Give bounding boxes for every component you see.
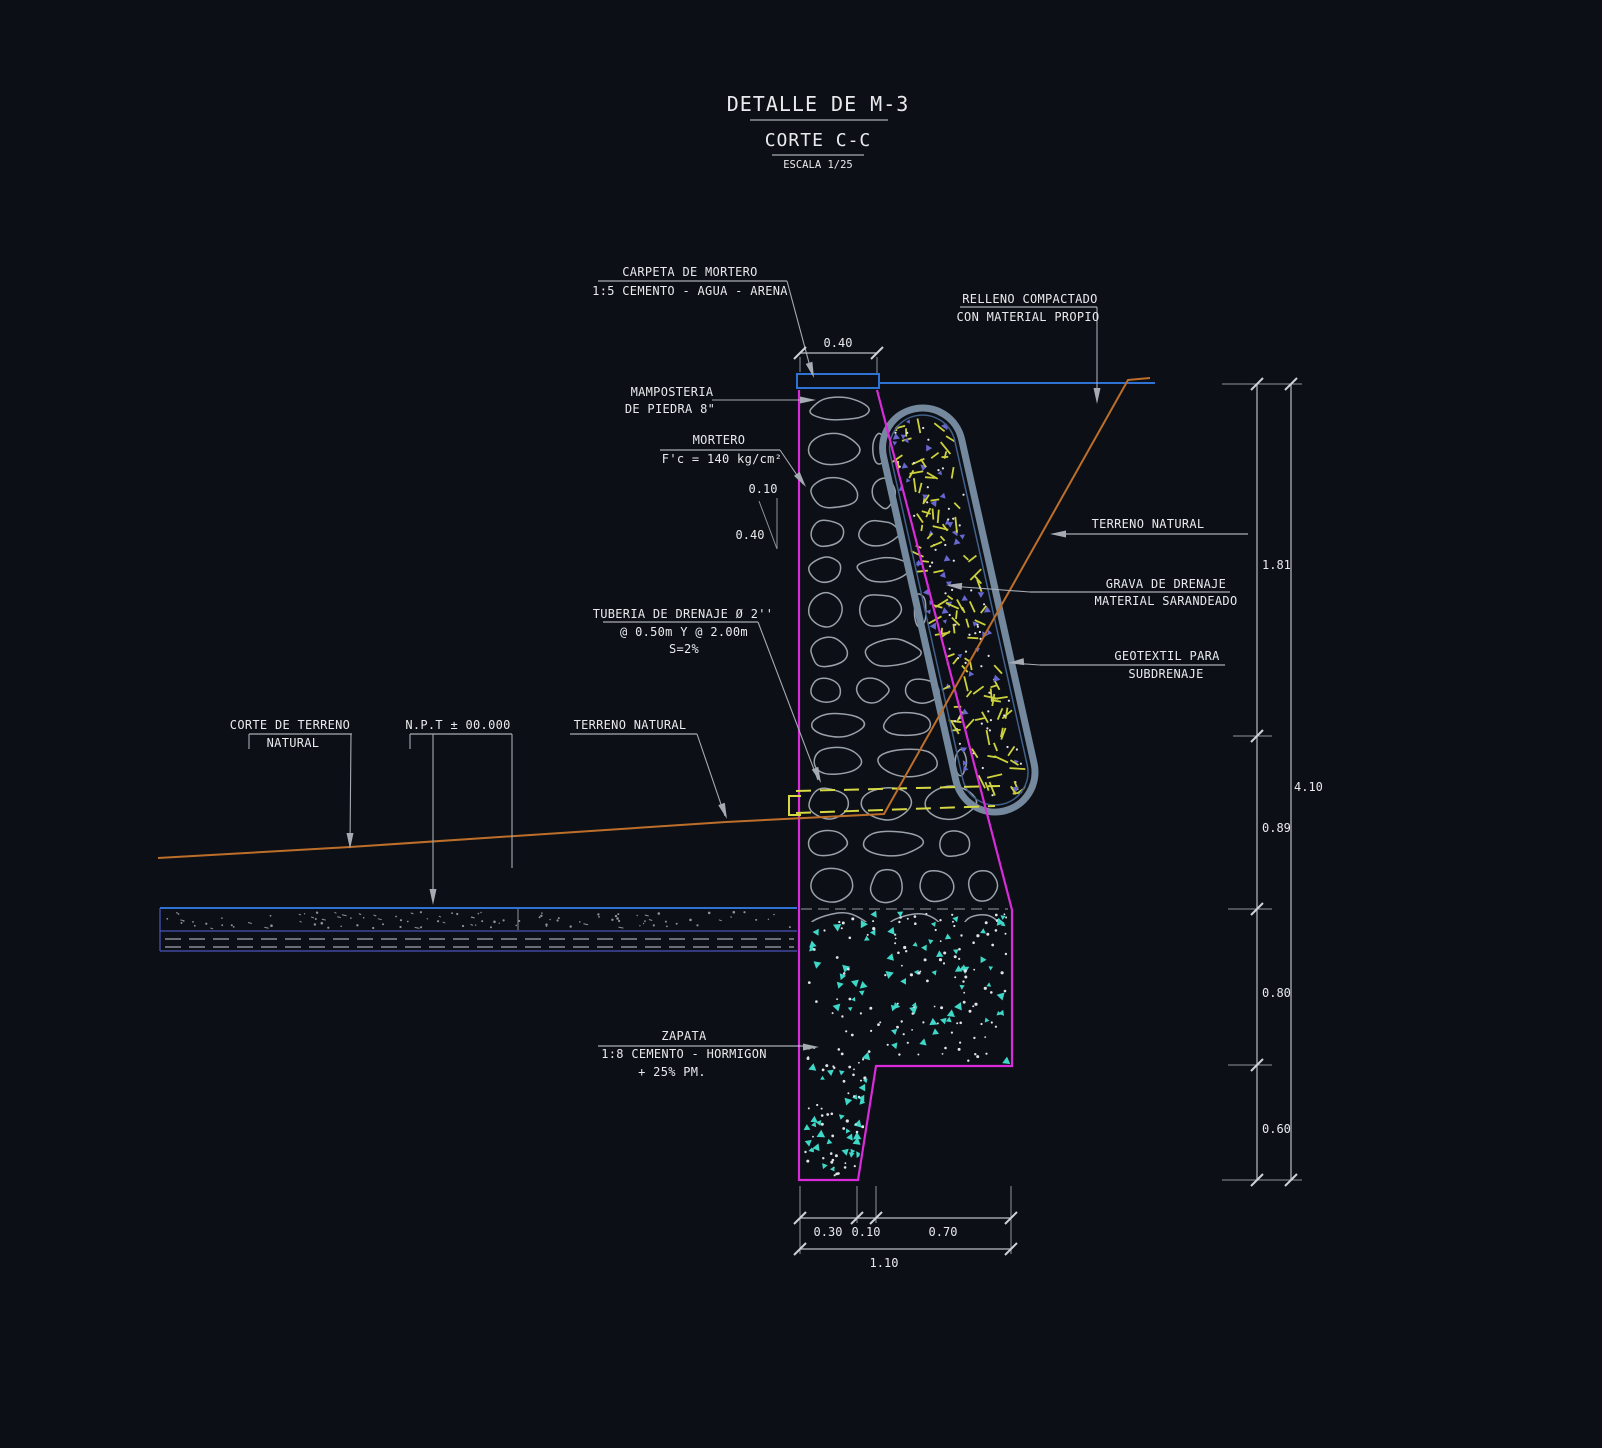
label-terreno-mid: TERRENO NATURAL: [574, 718, 687, 732]
detail-drawing: DETALLE DE M-3 CORTE C-C ESCALA 1/25: [0, 0, 1602, 1448]
gravel-speckles: [889, 419, 1028, 797]
label-npt: N.P.T ± 00.000: [405, 718, 510, 732]
label-geotextil-2: SUBDRENAJE: [1128, 667, 1203, 681]
dim-bottom-1: 0.30: [814, 1225, 843, 1239]
label-relleno-1: RELLENO COMPACTADO: [962, 292, 1097, 306]
label-grava-2: MATERIAL SARANDEADO: [1095, 594, 1238, 608]
annotations: CARPETA DE MORTERO 1:5 CEMENTO - AGUA - …: [230, 265, 1323, 1270]
label-geotextil-1: GEOTEXTIL PARA: [1114, 649, 1220, 663]
label-carpeta-2: 1:5 CEMENTO - AGUA - ARENA: [592, 284, 788, 298]
label-zapata-3: + 25% PM.: [638, 1065, 706, 1079]
dim-right-3: 0.80: [1262, 986, 1291, 1000]
dim-right-4: 0.60: [1262, 1122, 1291, 1136]
label-mamposteria-2: DE PIEDRA 8": [625, 402, 715, 416]
dim-right-total: 4.10: [1294, 780, 1323, 794]
dim-right-2: 0.89: [1262, 821, 1291, 835]
label-terreno-right: TERRENO NATURAL: [1092, 517, 1205, 531]
dim-bottom-total: 1.10: [870, 1256, 899, 1270]
pipe-bottom-dashed: [796, 806, 995, 813]
label-mortero-1: MORTERO: [693, 433, 746, 447]
dim-bottom-3: 0.70: [929, 1225, 958, 1239]
label-relleno-2: CON MATERIAL PROPIO: [957, 310, 1100, 324]
title-block: DETALLE DE M-3 CORTE C-C ESCALA 1/25: [727, 92, 910, 171]
dim-batter-h: 0.10: [749, 482, 778, 496]
label-mamposteria-1: MAMPOSTERIA: [631, 385, 714, 399]
dim-bottom-2: 0.10: [852, 1225, 881, 1239]
geotextile-wrap-outline: [875, 400, 1043, 820]
drawing-title: DETALLE DE M-3: [727, 92, 910, 116]
label-tuberia-3: S=2%: [669, 642, 700, 656]
label-tuberia-2: @ 0.50m Y @ 2.00m: [620, 625, 748, 639]
concrete-hatch: [804, 911, 1011, 1177]
label-corte-1: CORTE DE TERRENO: [230, 718, 350, 732]
label-mortero-2: F'c = 140 kg/cm²: [662, 452, 782, 466]
section-title: CORTE C-C: [765, 130, 872, 151]
cad-canvas: DETALLE DE M-3 CORTE C-C ESCALA 1/25: [0, 0, 1602, 1448]
gravel-drain: [875, 400, 1043, 820]
dimension-lines: [794, 347, 1302, 1255]
dim-right-1: 1.81: [1262, 558, 1291, 572]
label-carpeta-1: CARPETA DE MORTERO: [622, 265, 757, 279]
label-zapata-1: ZAPATA: [661, 1029, 707, 1043]
label-corte-2: NATURAL: [267, 736, 320, 750]
label-zapata-2: 1:8 CEMENTO - HORMIGON: [601, 1047, 767, 1061]
existing-ground-band: [160, 908, 797, 951]
band-speckle-hatch: [166, 911, 791, 929]
dimension-ticks: [794, 347, 1297, 1255]
scale-note: ESCALA 1/25: [783, 159, 853, 171]
label-tuberia-1: TUBERIA DE DRENAJE Ø 2'': [593, 607, 774, 621]
label-grava-1: GRAVA DE DRENAJE: [1106, 577, 1226, 591]
dim-top-width: 0.40: [824, 336, 853, 350]
mortar-cap: [797, 374, 879, 388]
dim-batter-v: 0.40: [736, 528, 765, 542]
